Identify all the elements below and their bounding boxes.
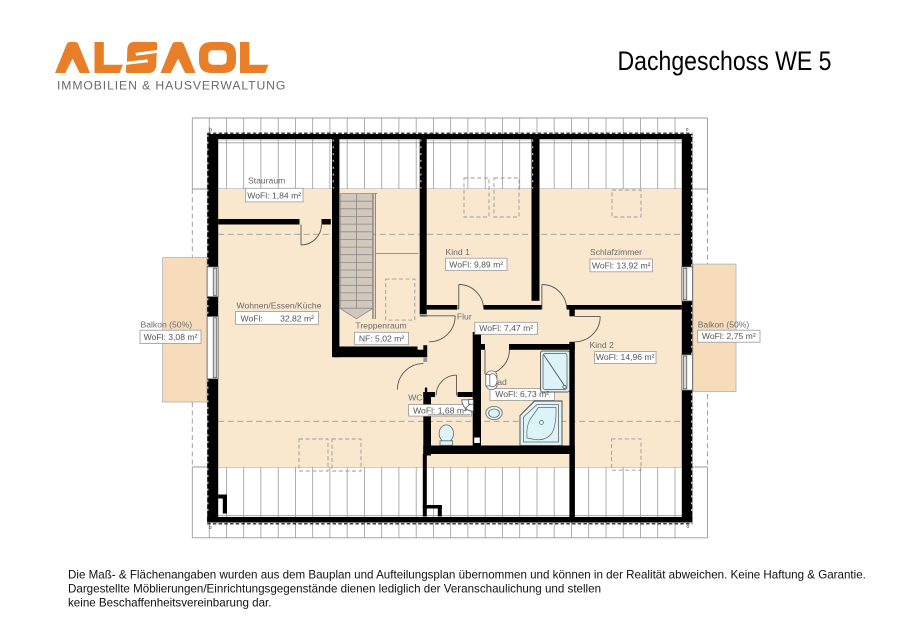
svg-text:o: o	[686, 127, 689, 133]
svg-text:WoFl: 1,68 m²: WoFl: 1,68 m²	[413, 405, 467, 415]
svg-text:WoFl: 6,73 m²: WoFl: 6,73 m²	[495, 389, 549, 399]
svg-text:32,82 m²: 32,82 m²	[280, 313, 314, 323]
svg-text:WoFl: 7,47 m²: WoFl: 7,47 m²	[479, 323, 533, 333]
svg-text:WoFl: 13,92 m²: WoFl: 13,92 m²	[592, 261, 651, 271]
svg-text:WoFl: 2,75 m²: WoFl: 2,75 m²	[702, 331, 756, 341]
svg-text:WoFl: 1,84 m²: WoFl: 1,84 m²	[247, 191, 301, 201]
svg-text:Balkon (50%): Balkon (50%)	[698, 320, 750, 330]
svg-text:NF: 5,02 m²: NF: 5,02 m²	[359, 333, 405, 343]
svg-text:Schlafzimmer: Schlafzimmer	[590, 247, 642, 257]
svg-text:Treppenraum: Treppenraum	[355, 321, 406, 331]
svg-text:WoFl:: WoFl:	[241, 313, 263, 323]
svg-text:Die Maß- & Flächenangaben wurd: Die Maß- & Flächenangaben wurden aus dem…	[68, 569, 866, 582]
svg-text:b: b	[209, 128, 212, 134]
svg-text:Stauraum: Stauraum	[248, 176, 285, 186]
svg-text:WoFl: 3,08 m²: WoFl: 3,08 m²	[144, 332, 198, 342]
svg-text:Flur: Flur	[457, 311, 472, 321]
svg-text:Dargestellte Möblierungen/Einr: Dargestellte Möblierungen/Einrichtungsge…	[68, 583, 601, 596]
svg-text:WC: WC	[408, 393, 422, 403]
svg-text:keine Beschaffenheitsvereinbar: keine Beschaffenheitsvereinbarung dar.	[68, 597, 271, 610]
svg-text:Wohnen/Essen/Küche: Wohnen/Essen/Küche	[237, 300, 322, 310]
svg-text:Balkon (50%): Balkon (50%)	[141, 320, 193, 330]
svg-text:Dachgeschoss WE 5: Dachgeschoss WE 5	[618, 46, 832, 76]
svg-text:Kind 2: Kind 2	[590, 340, 615, 350]
svg-text:Kind 1: Kind 1	[446, 247, 471, 257]
svg-text:b: b	[209, 525, 212, 531]
svg-text:IMMOBILIEN & HAUSVERWALTUNG: IMMOBILIEN & HAUSVERWALTUNG	[57, 79, 286, 93]
svg-text:o: o	[687, 524, 690, 530]
svg-text:WoFl: 9,89 m²: WoFl: 9,89 m²	[449, 259, 503, 269]
svg-text:WoFl: 14,96 m²: WoFl: 14,96 m²	[596, 352, 655, 362]
